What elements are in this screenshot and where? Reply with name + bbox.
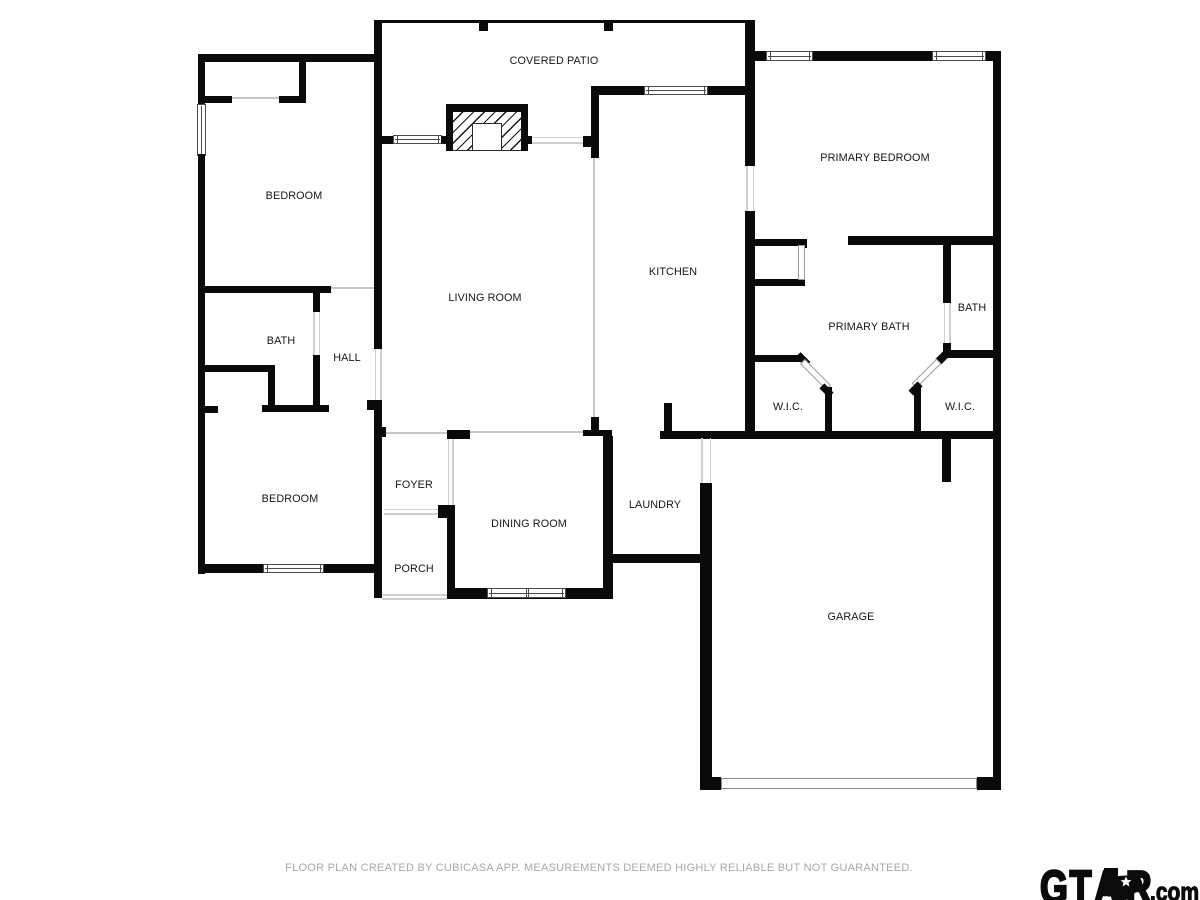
svg-text:T: T [1070, 862, 1092, 900]
svg-text:G: G [1040, 862, 1068, 900]
svg-text:.com: .com [1150, 877, 1199, 900]
